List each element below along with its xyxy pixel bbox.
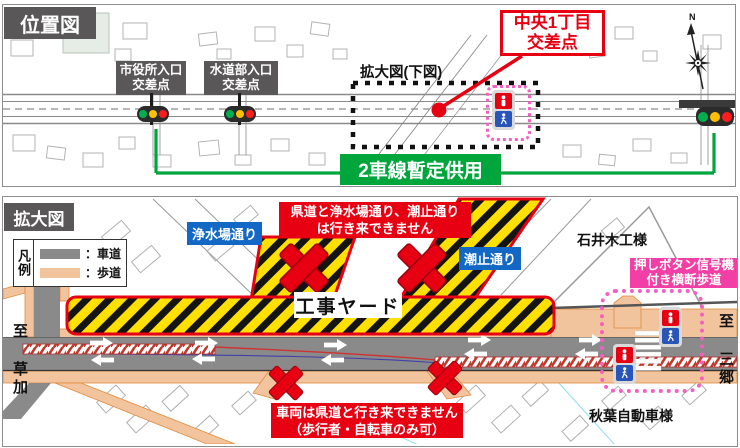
legend-rows: ：車道 ：歩道	[34, 240, 127, 286]
intersection-label-line1: 水道部入口	[210, 63, 273, 78]
green-lamp-icon	[139, 110, 147, 118]
pedestrian-signal-icon	[659, 307, 682, 347]
intersection-label-line2: 交差点	[132, 78, 170, 93]
yellow-lamp-icon	[236, 110, 244, 118]
side-road-stub	[34, 281, 60, 337]
pushbutton-signal-note-line1: 押しボタン信号機	[634, 258, 734, 273]
intersection-label-shiyakusho: 市役所入口 交差点	[116, 61, 186, 95]
closure-banner-top-line2: は行き来できません	[317, 220, 434, 237]
traffic-signal-icon	[137, 106, 169, 122]
legend-caption-cell: 凡例	[14, 240, 34, 286]
traffic-signal-icon	[224, 106, 256, 122]
median-strip	[23, 344, 215, 354]
street-label-shiodome: 潮止通り	[459, 247, 521, 270]
closure-banner-top: 県道と浄水場通り、潮止通り は行き来できません	[279, 202, 471, 238]
legend: 凡例 ：車道 ：歩道	[13, 239, 127, 287]
green-lamp-icon	[226, 110, 234, 118]
intersection-label-line2: 交差点	[222, 78, 260, 93]
closure-banner-top-line1: 県道と浄水場通り、潮止通り	[291, 203, 459, 220]
pedestrian-stop-icon	[616, 347, 633, 363]
compass-north-label: N	[689, 12, 696, 22]
location-map: N 位置図 市役所入口 交差点 水道部入口 交差点 拡大図	[2, 4, 736, 187]
yellow-lamp-icon	[149, 110, 157, 118]
enlarged-map: 拡大図 凡例 ：車道 ：歩道 浄水場通り 潮止通り 県道と浄水場通り、潮止通り …	[2, 196, 738, 447]
location-map-title: 位置図	[4, 7, 96, 39]
company-label-ishii: 石井木工様	[577, 230, 647, 250]
direction-label-soka: 至 草加	[9, 323, 30, 399]
red-lamp-icon	[159, 110, 167, 118]
company-label-akiba: 秋葉自動車様	[589, 406, 673, 426]
closure-banner-bottom-line1: 車両は県道と行き来できません	[276, 404, 458, 421]
legend-row-sidewalk: ：歩道	[40, 264, 121, 281]
traffic-signal-icon	[696, 107, 734, 126]
direction-label-misato: 至 三郷	[715, 313, 736, 389]
intersection-label-line1: 市役所入口	[120, 63, 183, 78]
enlarged-ref-label: 拡大図(下図)	[360, 61, 442, 82]
provisional-service-label: 2車線暫定供用	[340, 154, 501, 185]
intersection-label-suidobu: 水道部入口 交差点	[204, 61, 278, 95]
street-label-josuijo: 浄水場通り	[187, 222, 262, 245]
legend-roadway-label: ：車道	[85, 245, 121, 262]
yellow-lamp-icon	[710, 112, 720, 122]
closure-banner-bottom-line2: （歩行者・自転車のみ可）	[289, 421, 445, 438]
highlight-intersection-callout: 中央1丁目 交差点	[500, 10, 605, 56]
roadway-swatch	[40, 249, 80, 259]
sidewalk-swatch	[40, 268, 80, 278]
traffic-diagram-canvas: N 位置図 市役所入口 交差点 水道部入口 交差点 拡大図	[0, 0, 740, 448]
legend-row-roadway: ：車道	[40, 245, 121, 262]
pedestrian-stop-icon	[495, 93, 512, 109]
red-lamp-icon	[246, 110, 254, 118]
pushbutton-signal-note-line2: 付き横断歩道	[646, 273, 721, 288]
highlight-intersection-line2: 交差点	[527, 33, 578, 53]
pedestrian-walk-icon	[495, 111, 512, 127]
legend-caption: 凡例	[14, 249, 33, 277]
pushbutton-signal-note: 押しボタン信号機 付き横断歩道	[630, 258, 738, 288]
pedestrian-signal-icon	[613, 344, 636, 384]
enlarged-map-title: 拡大図	[4, 203, 74, 231]
red-lamp-icon	[722, 112, 732, 122]
pedestrian-signal-icon	[492, 90, 515, 130]
construction-yard-label: 工事ヤード	[294, 292, 402, 318]
pedestrian-stop-icon	[662, 310, 679, 326]
legend-sidewalk-label: ：歩道	[85, 264, 121, 281]
closure-banner-bottom: 車両は県道と行き来できません （歩行者・自転車のみ可）	[271, 403, 463, 438]
pedestrian-walk-icon	[616, 365, 633, 381]
compass-icon: N	[685, 12, 711, 89]
green-lamp-icon	[698, 112, 708, 122]
pedestrian-walk-icon	[662, 328, 679, 344]
highlight-intersection-line1: 中央1丁目	[514, 13, 591, 33]
